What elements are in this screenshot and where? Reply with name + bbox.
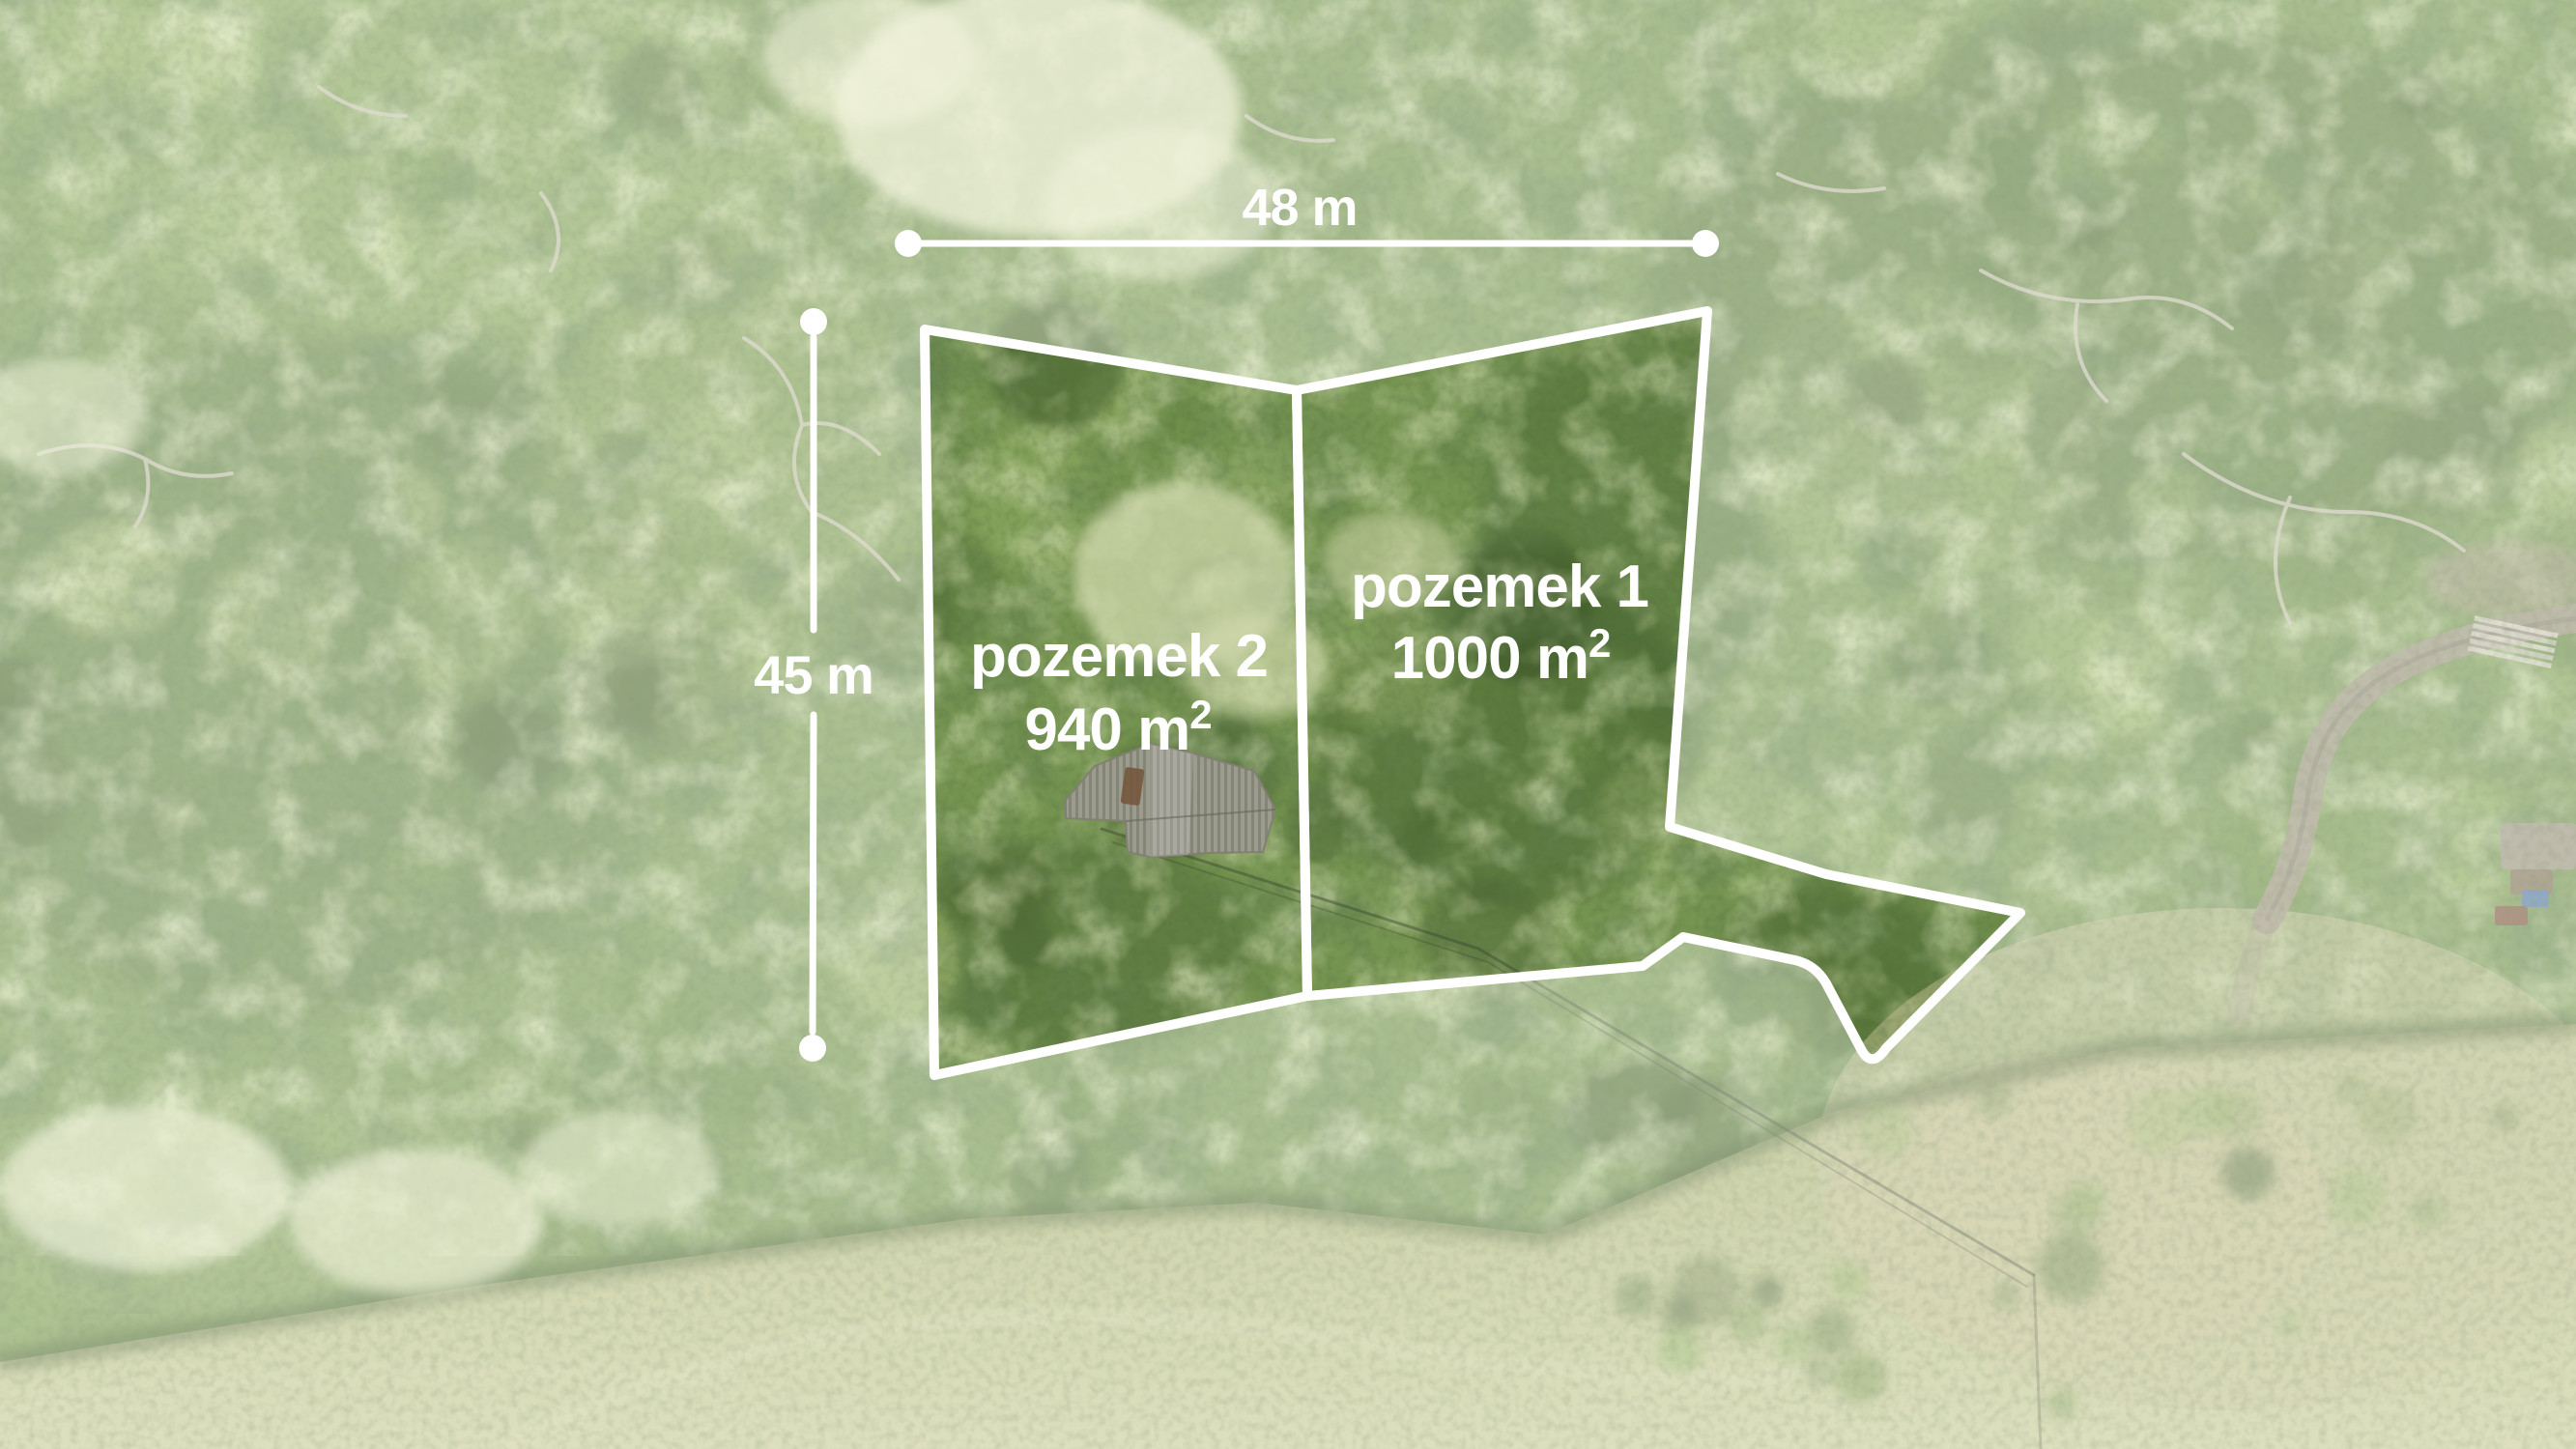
height-dimension-label: 45 m (754, 644, 873, 705)
width-dimension-endpoint-right (1692, 230, 1719, 257)
plot-1-area-label: 1000 m2 (1391, 620, 1611, 692)
aerial-photo: 48 m 45 m pozemek 1 1000 m2 pozemek 2 94… (0, 0, 2576, 1449)
width-dimension-endpoint-left (895, 230, 922, 257)
plot-2-area-label: 940 m2 (1024, 692, 1211, 763)
plot-1-name-label: pozemek 1 (1351, 554, 1648, 620)
height-dimension-line-lower (813, 715, 814, 1032)
height-dimension-endpoint-top (800, 308, 827, 335)
height-dimension-endpoint-bottom (799, 1035, 826, 1062)
plot-2-name-label: pozemek 2 (970, 623, 1268, 690)
width-dimension-label: 48 m (1242, 179, 1357, 237)
